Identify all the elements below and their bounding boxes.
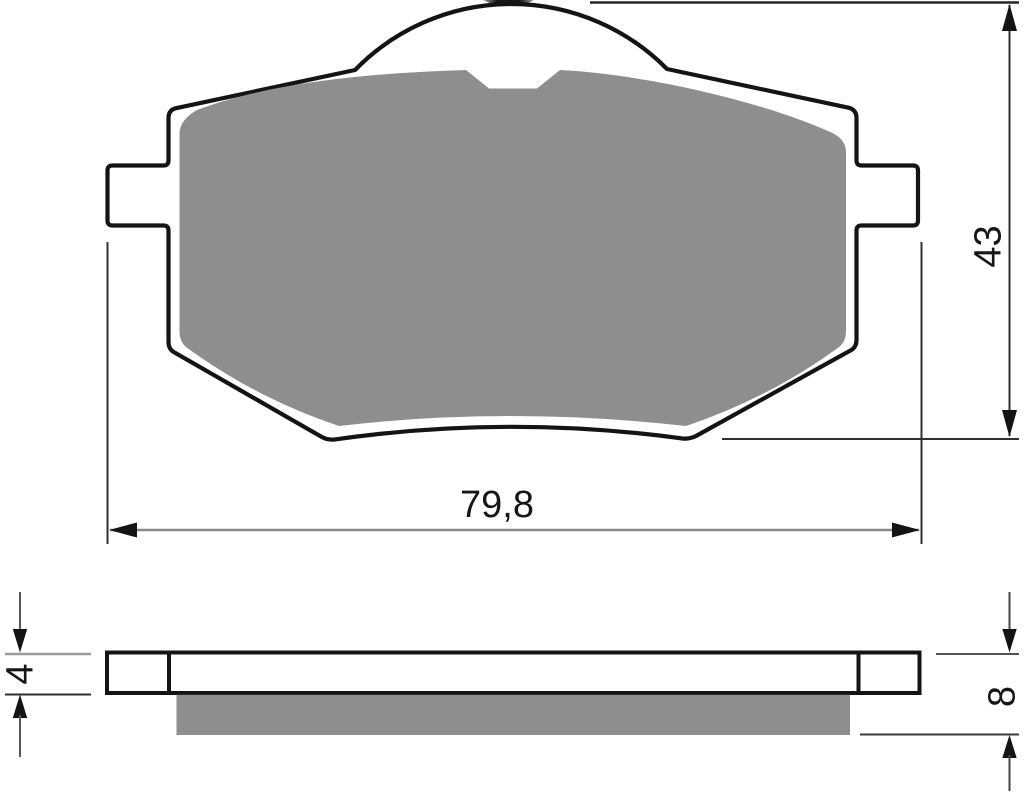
svg-text:79,8: 79,8	[460, 484, 534, 526]
svg-text:4: 4	[0, 663, 41, 684]
svg-text:43: 43	[968, 225, 1010, 267]
svg-text:8: 8	[982, 686, 1024, 707]
